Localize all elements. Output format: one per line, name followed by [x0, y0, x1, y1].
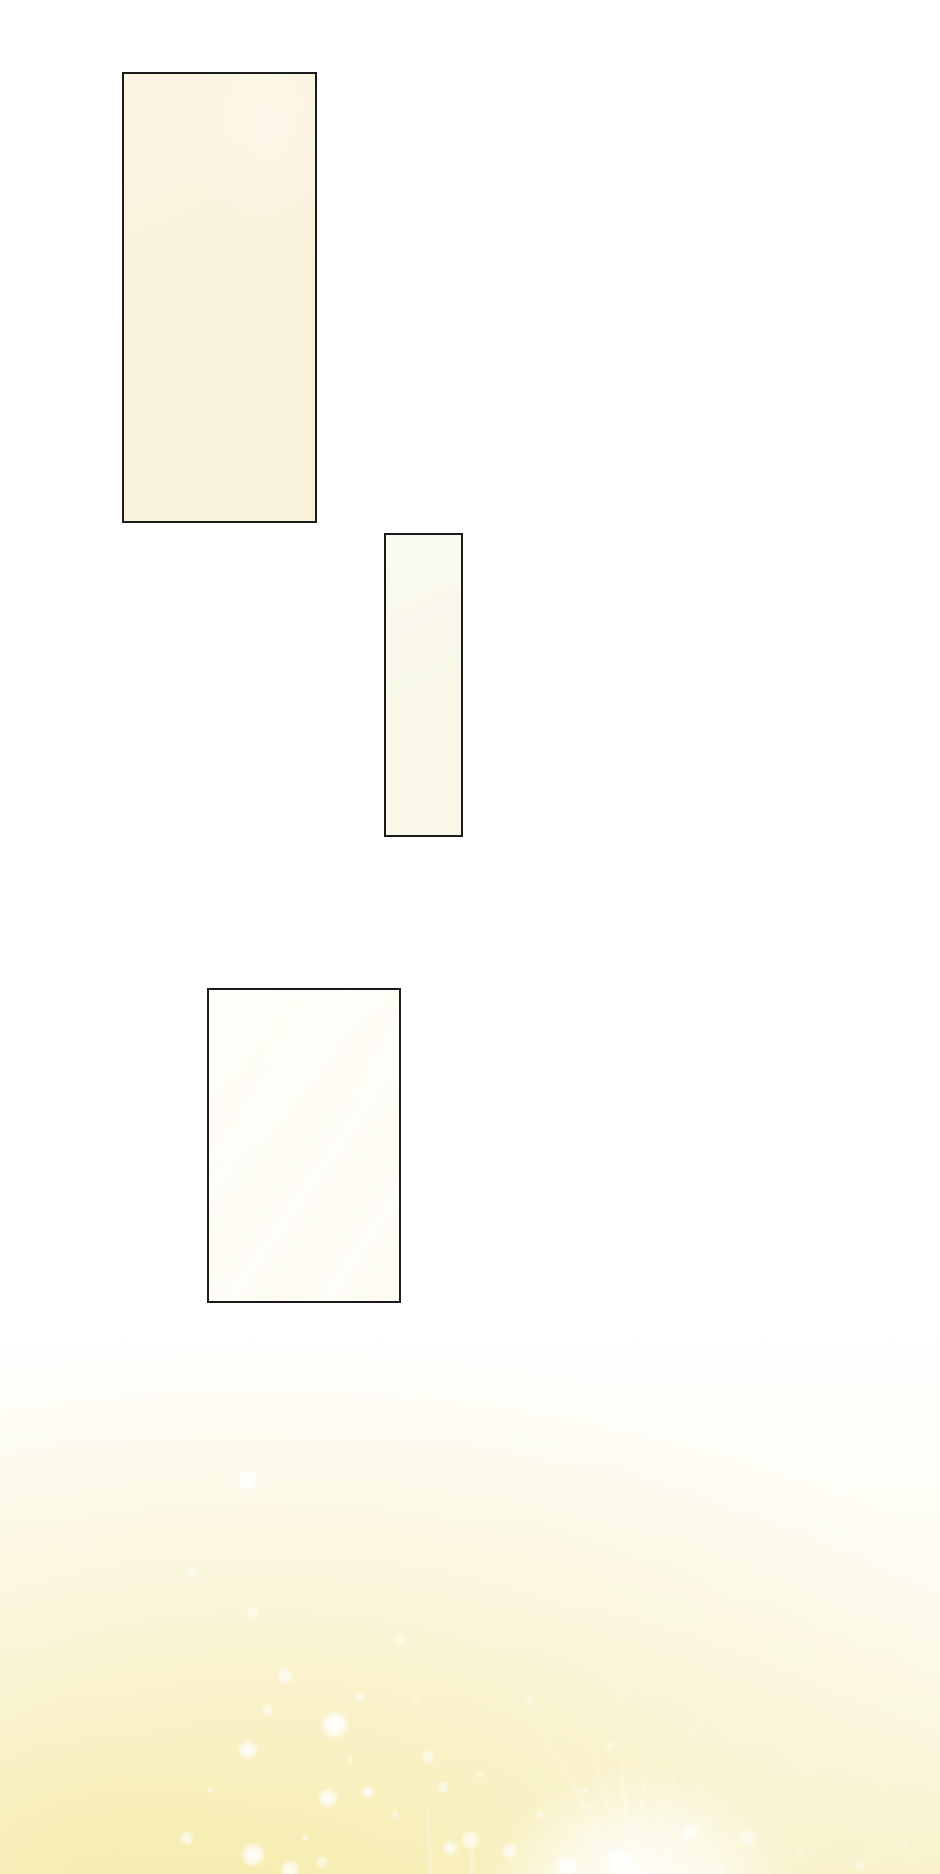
comic-panel-3 [207, 988, 401, 1303]
comic-page [0, 0, 940, 1874]
comic-panel-2 [384, 533, 463, 837]
comic-panel-1 [122, 72, 317, 523]
light-flare [440, 1640, 840, 1874]
